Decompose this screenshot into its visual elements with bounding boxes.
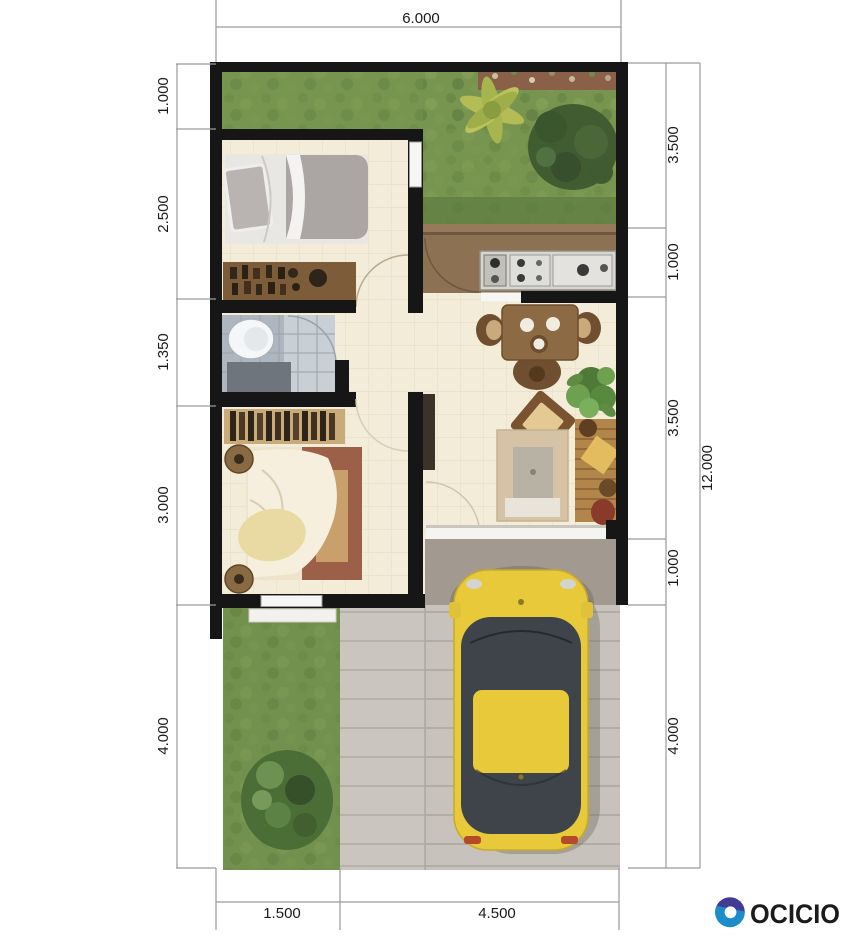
svg-text:1.500: 1.500 <box>263 905 301 922</box>
svg-text:1.350: 1.350 <box>155 333 172 371</box>
svg-text:4.000: 4.000 <box>665 717 682 755</box>
svg-text:2.500: 2.500 <box>155 195 172 233</box>
svg-text:3.500: 3.500 <box>665 126 682 164</box>
svg-text:12.000: 12.000 <box>699 445 716 491</box>
svg-text:1.000: 1.000 <box>665 549 682 587</box>
svg-text:3.000: 3.000 <box>155 486 172 524</box>
svg-text:6.000: 6.000 <box>402 10 440 27</box>
svg-text:4.000: 4.000 <box>155 717 172 755</box>
svg-text:3.500: 3.500 <box>665 399 682 437</box>
svg-text:1.000: 1.000 <box>665 243 682 281</box>
svg-text:1.000: 1.000 <box>155 77 172 115</box>
svg-text:4.500: 4.500 <box>478 905 516 922</box>
svg-text:OCICIO: OCICIO <box>750 899 840 929</box>
